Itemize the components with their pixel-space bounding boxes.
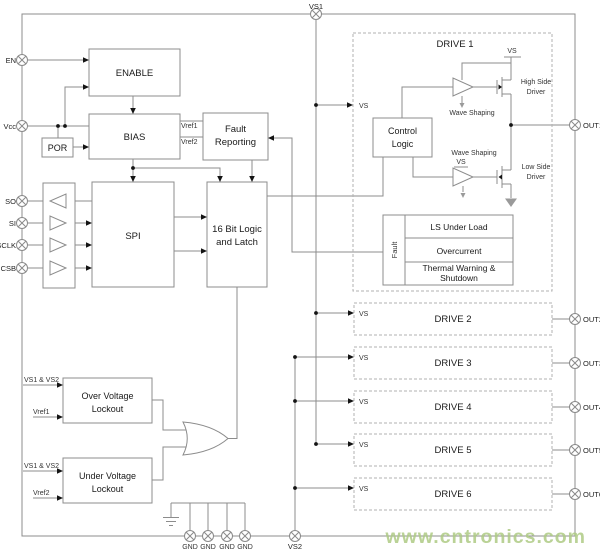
logic-label-2: and Latch: [216, 237, 258, 248]
en-pin-label: EN: [6, 56, 16, 65]
vs2-pin-icon: [290, 531, 301, 542]
or-gate-icon: [183, 422, 228, 455]
csb-pin-label: CSB: [1, 264, 16, 273]
drive2-vs-label: VS: [359, 311, 369, 318]
arrow: [130, 108, 136, 114]
earth-ground-icon: [163, 518, 179, 526]
spi-label: SPI: [125, 231, 140, 242]
ls-mosfet-body-arrow: [499, 175, 503, 180]
ls-wave-arrow-icon: [461, 193, 466, 198]
arrow: [347, 102, 353, 108]
drive6-vs-label: VS: [359, 486, 369, 493]
high-side-buffer-icon: [453, 78, 473, 96]
high-side-driver-label-1: High Side: [521, 79, 551, 86]
hs-wave-arrow-icon: [460, 103, 465, 108]
bootstrap-wire: [462, 63, 511, 80]
gnd1-pin-label: GND: [182, 544, 198, 550]
out4-pin-label: OUT4: [583, 403, 600, 412]
fault-side-label: Fault: [390, 241, 399, 259]
spi-logic-wires: [174, 217, 201, 251]
arrow: [201, 214, 207, 220]
uvl-label-2: Lockout: [92, 484, 124, 494]
gate-wires: [473, 87, 497, 177]
ls-vs-label: VS: [456, 159, 466, 166]
control-label-2: Logic: [392, 139, 414, 149]
or-to-logic-wire: [228, 287, 237, 439]
driver-symbols: VS Wave Shaping Wave Shaping VS High Sid…: [449, 48, 551, 207]
ls-wave-shaping-label: Wave Shaping: [451, 150, 496, 157]
arrow: [83, 144, 89, 150]
gnd2-pin-label: GND: [200, 544, 216, 550]
out5-pin-icon: [570, 445, 581, 456]
arrow: [201, 248, 207, 254]
so-pin-icon: [17, 196, 28, 207]
ic-block-diagram: DRIVE 1 DRIVE 2 DRIVE 3 DRIVE 4 DRIVE 5 …: [0, 0, 600, 550]
hs-vs-label: VS: [507, 48, 517, 55]
high-side-driver-label-2: Driver: [527, 89, 546, 96]
ground-arrow-icon: [505, 199, 517, 208]
arrow: [57, 495, 63, 501]
sclk-pin-icon: [17, 240, 28, 251]
drive1-vs-label: VS: [359, 103, 369, 110]
arrow: [348, 441, 354, 447]
out2-pin-icon: [570, 314, 581, 325]
por-label: POR: [48, 143, 68, 153]
uvl-vs-input-label: VS1 & VS2: [24, 463, 59, 470]
out5-pin-label: OUT5: [583, 446, 600, 455]
mosfet-bars: [497, 77, 502, 188]
block-diagram-page: DRIVE 1 DRIVE 2 DRIVE 3 DRIVE 4 DRIVE 5 …: [0, 0, 600, 550]
arrow: [86, 220, 92, 226]
arrow: [57, 382, 63, 388]
watermark: www.cntronics.com: [385, 526, 586, 548]
out3-pin-label: OUT3: [583, 359, 600, 368]
out1-pin-icon: [570, 120, 581, 131]
junction: [293, 486, 297, 490]
drive5-label: DRIVE 5: [435, 445, 472, 456]
gnd4-pin-icon: [240, 531, 251, 542]
vref1-label: Vref1: [181, 123, 198, 130]
ovl-label-1: Over Voltage: [81, 391, 133, 401]
vref2-label: Vref2: [181, 139, 198, 146]
hs-mosfet-body-arrow: [499, 85, 503, 90]
ovl-vs-input-label: VS1 & VS2: [24, 377, 59, 384]
junction: [293, 355, 297, 359]
fault-monitor-block: Fault LS Under Load Overcurrent Thermal …: [383, 215, 513, 285]
low-side-driver-label-2: Driver: [527, 174, 546, 181]
hs-wave-shaping-label: Wave Shaping: [449, 110, 494, 117]
low-side-driver-label-1: Low Side: [522, 164, 551, 171]
so-pin-label: SO: [5, 197, 16, 206]
si-pin-label: SI: [9, 219, 16, 228]
bias-label: BIAS: [124, 132, 146, 143]
control-label-1: Control: [388, 126, 417, 136]
out-wires: [552, 319, 570, 494]
junction: [314, 103, 318, 107]
enable-label: ENABLE: [116, 68, 154, 79]
arrow: [217, 176, 223, 182]
arrow: [130, 176, 136, 182]
fault-reporting-label-2: Reporting: [215, 137, 256, 148]
drive2-label: DRIVE 2: [435, 314, 472, 325]
vs1-pin-label: VS1: [309, 2, 323, 11]
bias-logic-wires: [133, 159, 252, 176]
logic-label-1: 16 Bit Logic: [212, 224, 262, 235]
gnd4-pin-label: GND: [237, 544, 253, 550]
arrow: [83, 57, 89, 63]
fault-row-thermal-2: Shutdown: [440, 273, 478, 283]
drive4-label: DRIVE 4: [435, 402, 472, 413]
ovl-vref1-input-label: Vref1: [33, 409, 50, 416]
gnd2-pin-icon: [203, 531, 214, 542]
csb-pin-icon: [17, 263, 28, 274]
drive1-label: DRIVE 1: [437, 39, 474, 50]
gnd3-pin-icon: [222, 531, 233, 542]
gnd-bus: [171, 503, 245, 530]
arrow: [249, 176, 255, 182]
drive5-vs-label: VS: [359, 442, 369, 449]
mosfet-leads: [502, 57, 521, 198]
arrow: [83, 84, 89, 90]
junction: [63, 124, 67, 128]
junction-dots: [56, 103, 513, 490]
out3-pin-icon: [570, 358, 581, 369]
uvl-vref2-input-label: Vref2: [33, 490, 50, 497]
ovl-label-2: Lockout: [92, 404, 124, 414]
lockout-or-wires: [152, 400, 188, 480]
junction: [509, 123, 513, 127]
arrow: [268, 135, 274, 141]
drive6-label: DRIVE 6: [435, 489, 472, 500]
arrow: [348, 398, 354, 404]
wire-labels: Vref1 Vref2 VS1 & VS2 Vref1 VS1 & VS2 Vr…: [24, 123, 198, 497]
logic-control-wire: [267, 157, 383, 196]
drive3-label: DRIVE 3: [435, 358, 472, 369]
uvl-label-1: Under Voltage: [79, 471, 136, 481]
vs2-pin-label: VS2: [288, 542, 302, 550]
out2-pin-label: OUT2: [583, 315, 600, 324]
junction: [314, 311, 318, 315]
out6-pin-label: OUT6: [583, 490, 600, 499]
fault-row-thermal-1: Thermal Warning &: [423, 263, 496, 273]
out1-pin-label: OUT1: [583, 121, 600, 130]
fault-row-ls-under-load: LS Under Load: [430, 222, 487, 232]
low-side-buffer-icon: [453, 168, 473, 186]
vs-feed-wires: [295, 105, 348, 488]
drive3-vs-label: VS: [359, 355, 369, 362]
arrow: [86, 265, 92, 271]
arrow: [57, 414, 63, 420]
arrow: [348, 354, 354, 360]
fault-row-overcurrent: Overcurrent: [437, 246, 483, 256]
vcc-pin-label: Vcc: [3, 122, 16, 131]
en-pin-icon: [17, 55, 28, 66]
junction: [56, 124, 60, 128]
arrow: [86, 242, 92, 248]
arrow: [57, 468, 63, 474]
out4-pin-icon: [570, 402, 581, 413]
gnd3-pin-label: GND: [219, 544, 235, 550]
fault-reporting-label-1: Fault: [225, 124, 246, 135]
vcc-pin-icon: [17, 121, 28, 132]
arrow: [348, 310, 354, 316]
lockout-input-wires: [23, 385, 57, 498]
gnd1-pin-icon: [185, 531, 196, 542]
junction: [293, 399, 297, 403]
junction: [314, 442, 318, 446]
sclk-pin-label: SCLK: [0, 241, 16, 250]
vcc-wires: [28, 87, 89, 138]
si-pin-icon: [17, 218, 28, 229]
arrow: [348, 485, 354, 491]
drive4-vs-label: VS: [359, 399, 369, 406]
out6-pin-icon: [570, 489, 581, 500]
junction: [131, 166, 135, 170]
fault-feedback-wire: [272, 138, 383, 252]
control-logic-block: [373, 118, 432, 157]
